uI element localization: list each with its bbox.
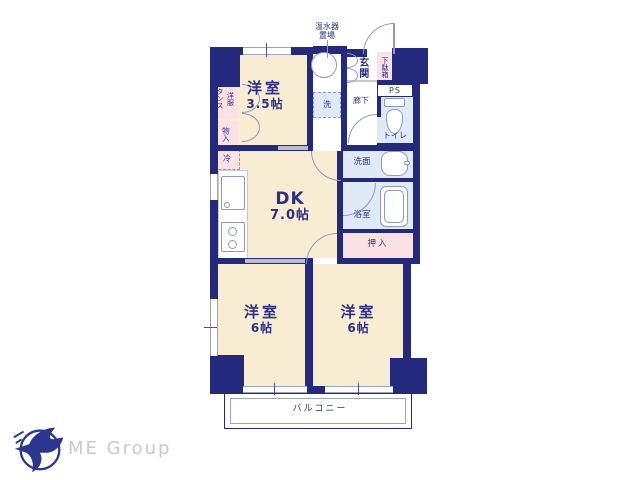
label-toilet: トイレ	[377, 130, 413, 141]
toilet-door-arc	[348, 114, 377, 143]
wall-room-divider	[305, 258, 313, 390]
wall-right-lower	[403, 258, 411, 364]
label-ps: PS	[377, 84, 413, 97]
floorplan-canvas: 洋室 3.5帖 DK 7.0帖 洋室 6帖 洋室 6帖 バルコニー 玄関 下駄箱…	[0, 0, 640, 480]
logo-text: ME Group	[68, 438, 171, 459]
room-label-west35: 洋室 3.5帖	[225, 72, 305, 120]
wall	[343, 178, 413, 182]
room-size: 7.0帖	[270, 209, 310, 224]
label-fridge: 冷	[214, 152, 240, 166]
wall-right-upper	[413, 80, 420, 264]
label-balcony: バルコニー	[245, 402, 395, 416]
room-size: 6帖	[347, 322, 369, 336]
window	[325, 386, 393, 393]
window-tick	[266, 43, 267, 57]
wall	[377, 143, 420, 148]
wall-corner-block	[392, 48, 428, 84]
room-name: 洋室	[244, 304, 280, 321]
window	[210, 174, 218, 200]
washbasin-handle-icon	[404, 161, 410, 165]
label-oshiire: 押入	[343, 239, 413, 251]
label-senmen: 洗面	[345, 157, 379, 169]
water-heater-icon	[311, 52, 337, 78]
room-name: DK	[275, 190, 304, 210]
window	[243, 386, 307, 393]
sliding-door	[278, 146, 308, 150]
sliding-door	[245, 259, 305, 263]
label-heater: 温水器 置場	[305, 20, 349, 42]
label-corridor: 廊下	[346, 95, 376, 106]
heater-leader-line	[327, 40, 328, 58]
toilet-tank-icon	[384, 98, 405, 107]
room-size: 3.5帖	[246, 98, 283, 112]
window-tick	[204, 327, 217, 328]
room-name: 洋室	[247, 80, 283, 97]
label-genkan: 玄関	[354, 54, 370, 82]
label-mononyu: 物入	[219, 124, 231, 144]
room-name: 洋室	[340, 304, 376, 321]
label-bath: 浴室	[345, 210, 379, 222]
bathtub-inner-icon	[384, 190, 404, 223]
faucet-icon	[224, 202, 230, 208]
entrance-door-leaf	[393, 23, 395, 54]
stove-burner-icon	[228, 240, 237, 249]
room-label-west6b: 洋室 6帖	[316, 296, 401, 344]
stove-burner-icon	[228, 227, 237, 236]
me-group-logo-icon	[10, 418, 68, 476]
wall	[343, 229, 413, 233]
window	[243, 47, 291, 55]
room-size: 6帖	[251, 322, 273, 336]
room-label-dk: DK 7.0帖	[240, 183, 340, 231]
label-getabako: 下駄箱	[379, 53, 391, 81]
entrance-door-arc	[363, 23, 394, 54]
label-laundry: 洗	[313, 98, 341, 112]
wall	[377, 97, 381, 117]
room-label-west6a: 洋室 6帖	[222, 296, 302, 344]
label-tansu: 洋服 タンス	[213, 82, 237, 115]
